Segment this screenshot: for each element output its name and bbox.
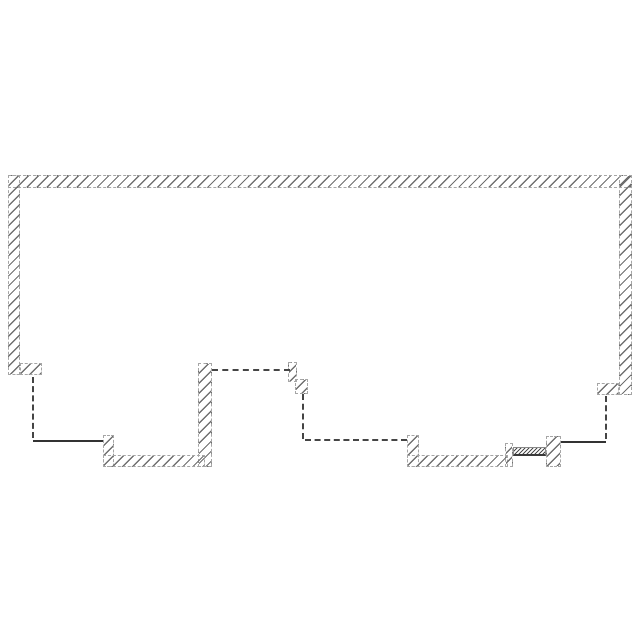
- sill-mini-pier-wall-segment: [505, 443, 513, 467]
- floor-plan-canvas: [0, 0, 640, 640]
- left-wall-wall-segment: [8, 175, 20, 375]
- step-guide-vertical: [302, 394, 304, 439]
- left-guide-vertical: [32, 377, 34, 438]
- left-bottom-line: [33, 440, 103, 442]
- center-pillar-wall-segment: [198, 363, 212, 467]
- center-guide-horizontal: [305, 439, 407, 441]
- left-wall-stub-wall-segment: [20, 363, 42, 375]
- bottom-wall-left-wall-segment: [103, 455, 205, 467]
- step-jog-lower-wall-segment: [295, 379, 308, 394]
- right-wall-wall-segment: [619, 175, 632, 395]
- right-bottom-line: [561, 441, 606, 443]
- bottom-wall-right-wall-segment: [407, 455, 508, 467]
- door-sill-wall-segment: [513, 447, 546, 456]
- bottom-right-pier-right-wall-segment: [546, 436, 561, 467]
- right-guide-vertical: [605, 396, 607, 439]
- pillar-guide-horizontal: [212, 369, 290, 371]
- top-wall-wall-segment: [8, 175, 632, 188]
- right-wall-stub-wall-segment: [597, 383, 619, 395]
